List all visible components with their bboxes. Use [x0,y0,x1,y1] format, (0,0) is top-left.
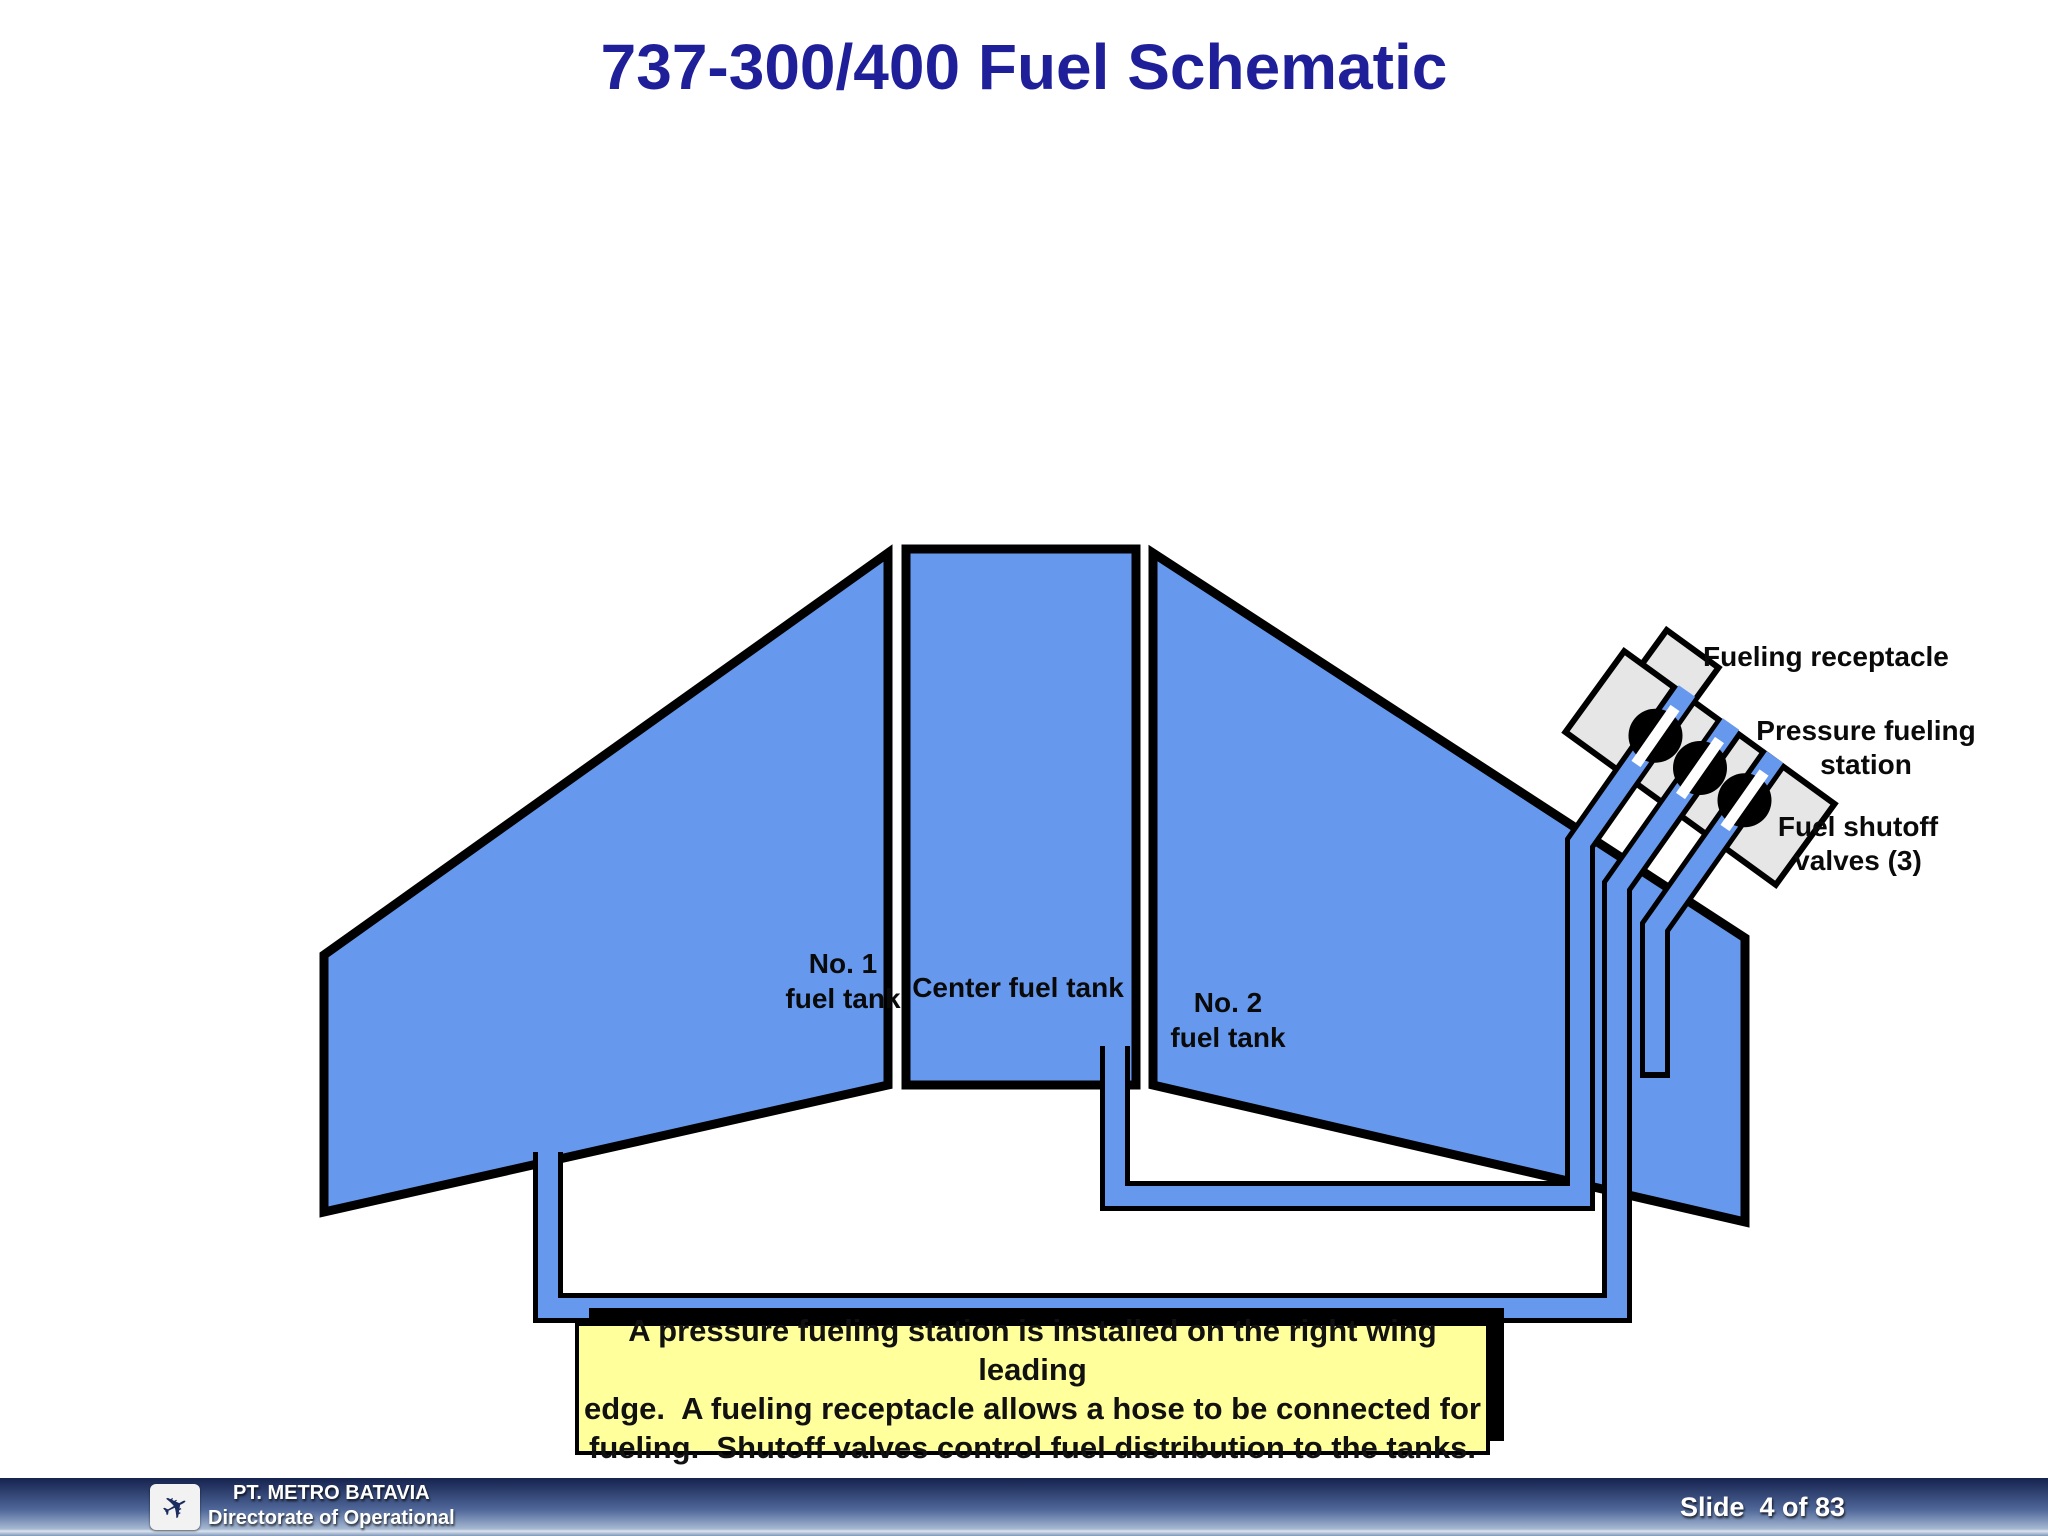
no1-tank-label-line2: fuel tank [785,983,901,1014]
shutoff-valves-label-line2: valves (3) [1794,845,1922,876]
footer-organization: PT. METRO BATAVIA Directorate of Operati… [208,1481,455,1531]
fuel-schematic-diagram: No. 1 fuel tank Center fuel tank No. 2 f… [0,0,2048,1536]
no2-tank-label-line2: fuel tank [1170,1022,1286,1053]
fueling-receptacle-label: Fueling receptacle [1703,641,1949,672]
footer-org-line1: PT. METRO BATAVIA [233,1481,430,1506]
batavia-logo: ✈ [150,1484,200,1530]
airplane-icon: ✈ [156,1487,195,1528]
pressure-station-label-line1: Pressure fueling [1756,715,1975,746]
shutoff-valves-label-line1: Fuel shutoff [1778,811,1939,842]
no2-tank-label-line1: No. 2 [1194,987,1262,1018]
slide-number: Slide 4 of 83 [1680,1478,1845,1536]
no1-fuel-tank-wing [324,553,888,1212]
center-tank-label: Center fuel tank [912,972,1124,1003]
caption-line-1: A pressure fueling station is installed … [579,1311,1486,1389]
caption-line-3: fueling. Shutoff valves control fuel dis… [589,1428,1476,1467]
center-fuel-tank [906,549,1136,1085]
pressure-station-label-line2: station [1820,749,1912,780]
caption-line-2: edge. A fueling receptacle allows a hose… [584,1389,1481,1428]
slide: 737-300/400 Fuel Schematic [0,0,2048,1536]
no1-tank-label-line1: No. 1 [809,948,877,979]
footer-org-line2: Directorate of Operational [208,1506,455,1531]
footer-bar: ✈ PT. METRO BATAVIA Directorate of Opera… [0,1478,2048,1536]
caption-box: A pressure fueling station is installed … [575,1322,1490,1455]
